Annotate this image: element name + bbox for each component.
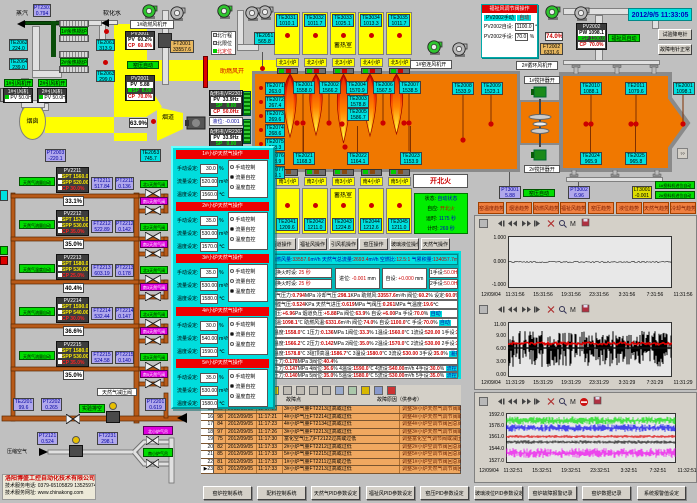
svg-text:M: M — [570, 307, 576, 314]
svg-text:M: M — [570, 399, 576, 406]
svg-text:M: M — [570, 221, 576, 228]
